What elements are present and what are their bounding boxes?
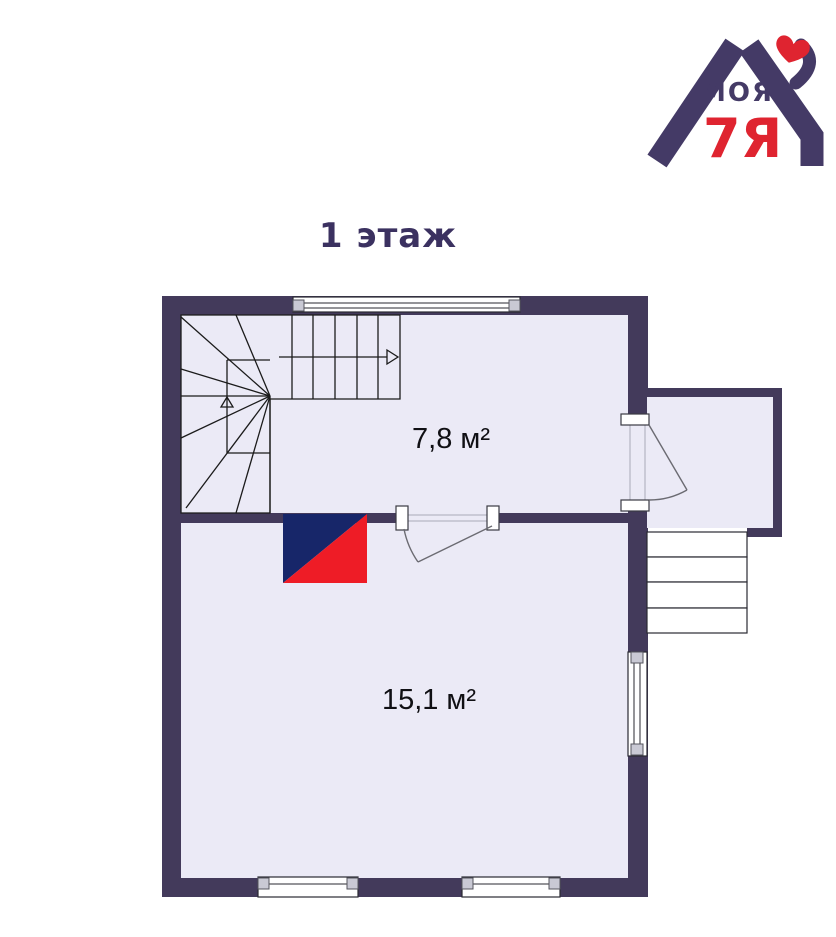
page: МОЯ 7Я 1 этаж: [0, 0, 836, 937]
window-cap: [258, 878, 269, 889]
window-cap: [347, 878, 358, 889]
window-cap: [631, 744, 643, 755]
window-cap: [631, 652, 643, 663]
porch-wall-top: [647, 388, 782, 397]
porch-floor: [647, 397, 773, 528]
room-area-label: 7,8 м²: [351, 423, 551, 456]
floor-area: [181, 315, 628, 878]
window-frame: [462, 877, 560, 897]
porch: [647, 388, 782, 537]
window-cap: [549, 878, 560, 889]
window-frame: [293, 297, 520, 312]
outdoor-steps: [647, 532, 747, 633]
window-top: [293, 297, 520, 312]
step: [647, 532, 747, 557]
porch-wall-bottom: [747, 528, 782, 537]
door-jamb: [487, 506, 499, 530]
step: [647, 582, 747, 608]
window-cap: [509, 300, 520, 311]
entrance-door-opening: [628, 424, 647, 501]
window-cap: [293, 300, 304, 311]
door-jamb: [621, 414, 649, 425]
window-frame: [628, 652, 647, 756]
porch-wall-right: [773, 388, 782, 537]
door-jamb: [396, 506, 408, 530]
window-right: [628, 652, 647, 756]
step: [647, 608, 747, 633]
window-cap: [462, 878, 473, 889]
floor-plan: [0, 0, 836, 937]
stove-symbol: [283, 514, 367, 583]
window-frame: [258, 877, 358, 897]
step: [647, 557, 747, 582]
window-bottom-left: [258, 877, 358, 897]
window-bottom-right: [462, 877, 560, 897]
room-area-label: 15,1 м²: [329, 684, 529, 717]
door-jamb: [621, 500, 649, 511]
